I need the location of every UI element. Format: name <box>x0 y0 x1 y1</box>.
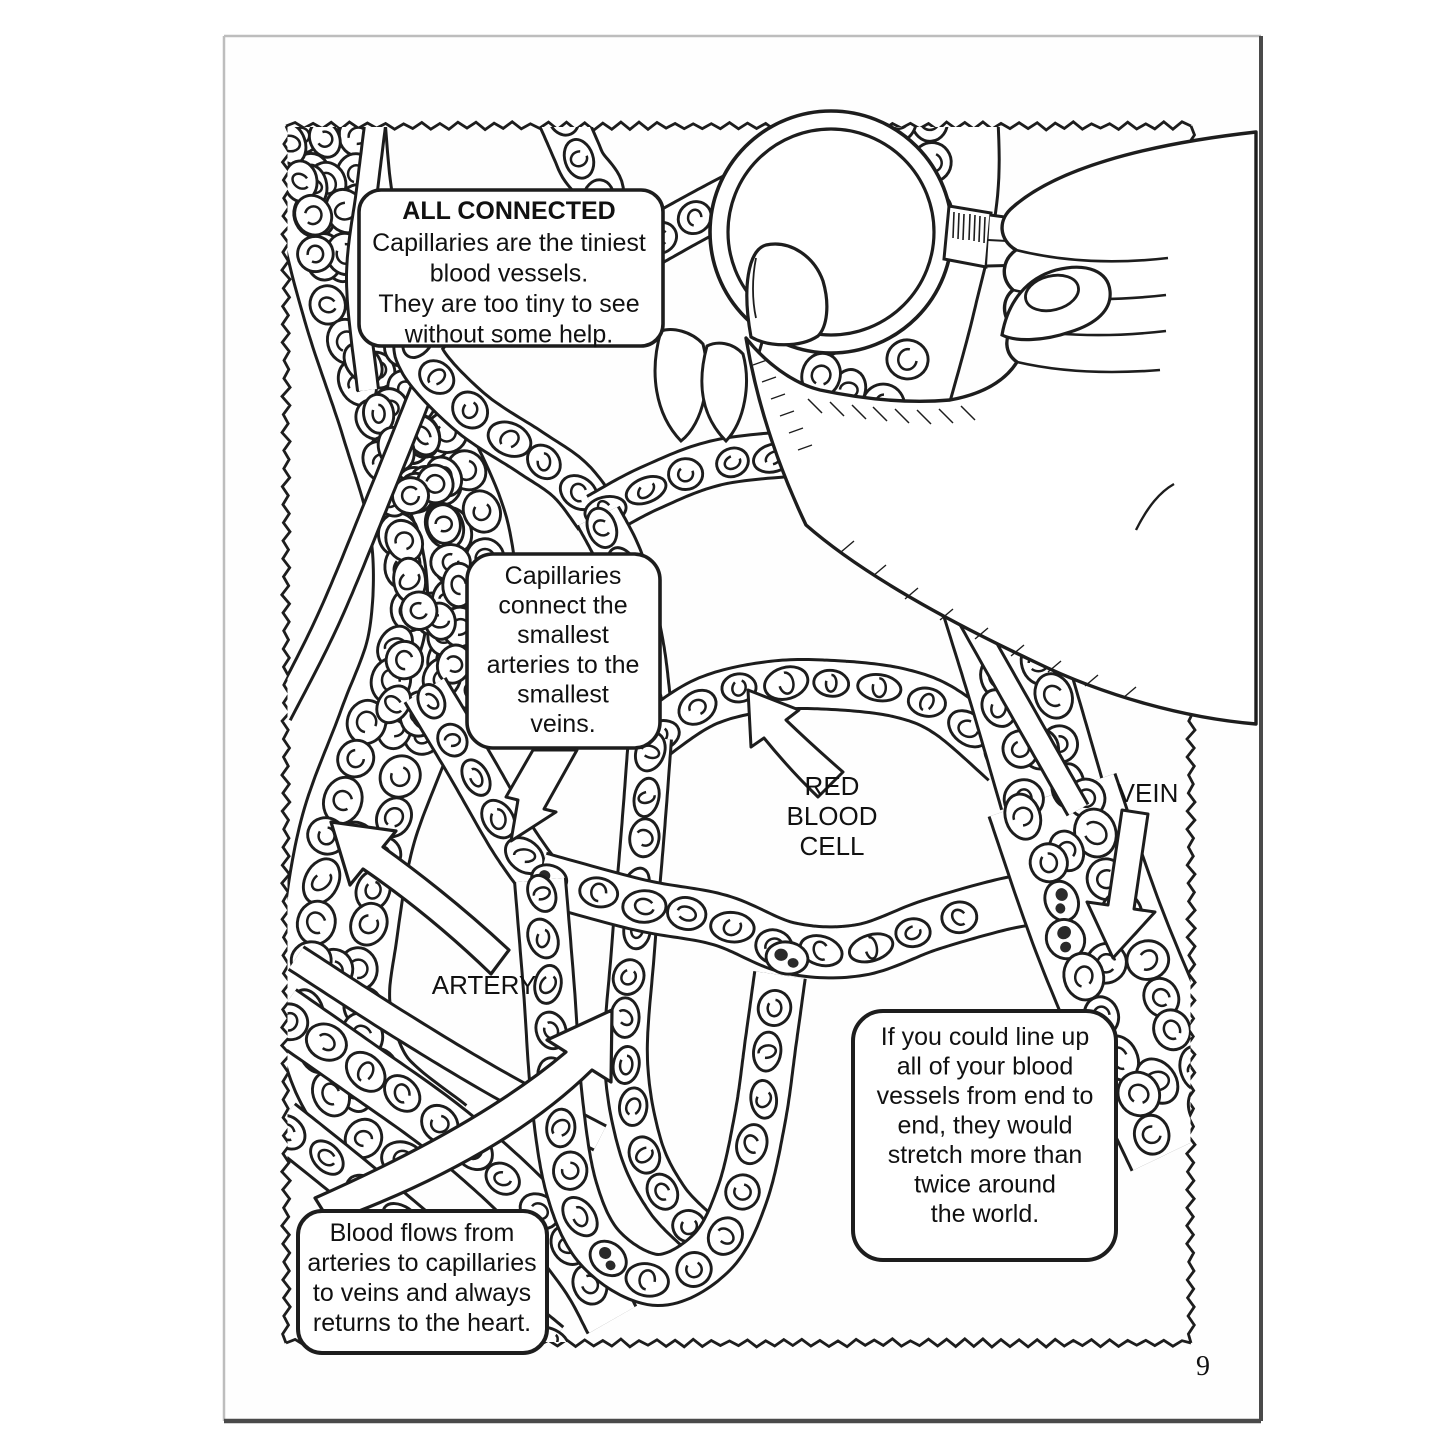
svg-text:connect the: connect the <box>498 592 627 620</box>
svg-text:ARTERY: ARTERY <box>432 970 537 1000</box>
svg-text:without some help.: without some help. <box>404 321 613 349</box>
svg-text:CELL: CELL <box>799 831 864 861</box>
svg-text:vessels from end to: vessels from end to <box>877 1082 1094 1110</box>
svg-text:blood vessels.: blood vessels. <box>430 260 588 288</box>
svg-text:arteries to the: arteries to the <box>487 651 640 679</box>
svg-text:returns to the heart.: returns to the heart. <box>313 1309 531 1337</box>
svg-text:stretch more than: stretch more than <box>888 1141 1083 1169</box>
svg-text:smallest: smallest <box>517 680 609 708</box>
svg-text:Blood flows from: Blood flows from <box>330 1219 515 1247</box>
svg-text:twice around: twice around <box>914 1171 1056 1199</box>
svg-text:VEIN: VEIN <box>1118 778 1179 808</box>
svg-text:veins.: veins. <box>530 710 595 738</box>
svg-text:ALL CONNECTED: ALL CONNECTED <box>402 197 615 225</box>
svg-text:arteries to capillaries: arteries to capillaries <box>307 1249 536 1277</box>
svg-text:end, they would: end, they would <box>897 1112 1072 1140</box>
svg-text:RED: RED <box>805 771 860 801</box>
svg-text:smallest: smallest <box>517 621 609 649</box>
svg-text:Capillaries are the tiniest: Capillaries are the tiniest <box>372 229 646 257</box>
svg-text:They are too tiny to see: They are too tiny to see <box>378 290 639 318</box>
svg-text:9: 9 <box>1196 1351 1210 1382</box>
svg-text:all of your blood: all of your blood <box>897 1053 1074 1081</box>
svg-text:the world.: the world. <box>931 1200 1039 1228</box>
svg-text:Capillaries: Capillaries <box>505 562 622 590</box>
svg-text:BLOOD: BLOOD <box>786 801 877 831</box>
svg-text:to veins and always: to veins and always <box>313 1279 531 1307</box>
svg-text:If you could line up: If you could line up <box>881 1023 1089 1051</box>
